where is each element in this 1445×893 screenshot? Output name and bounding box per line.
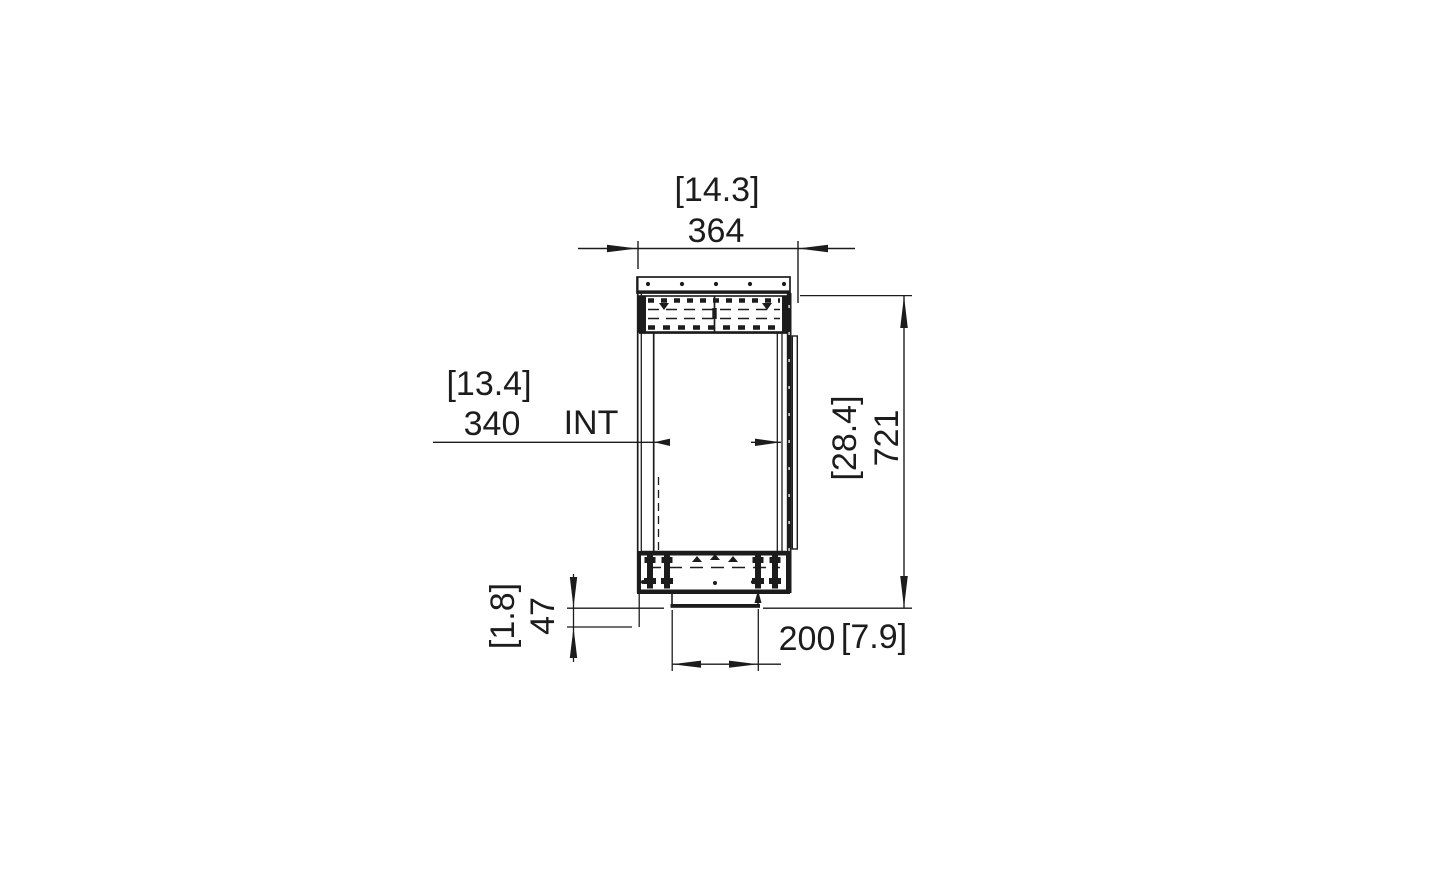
dim-top-width-metric: 364: [688, 214, 745, 248]
dim-outlet-width-imperial: [7.9]: [841, 620, 907, 654]
glass-panel: [792, 336, 797, 549]
dimension-200-lines: [672, 609, 781, 671]
burner-box: [639, 296, 789, 333]
dim-interior-width-metric: 340: [464, 407, 521, 441]
dim-interior-width-imperial: [13.4]: [446, 367, 531, 401]
dim-base-offset-metric: 47: [526, 597, 560, 635]
base-bracket: [637, 551, 790, 594]
dim-interior-width-suffix: INT: [564, 406, 619, 440]
dim-overall-height-metric: 721: [870, 410, 904, 467]
dim-outlet-width-metric: 200: [779, 622, 836, 656]
dim-top-width-imperial: [14.3]: [674, 173, 759, 207]
dim-overall-height-imperial: [28.4]: [828, 395, 862, 480]
flange-plate: [637, 277, 790, 293]
dim-base-offset-imperial: [1.8]: [486, 583, 520, 649]
drawing-linework: [0, 0, 1445, 893]
drawing-sheet: [14.3] 364 [13.4] 340 INT [28.4] 721 [1.…: [0, 0, 1445, 893]
